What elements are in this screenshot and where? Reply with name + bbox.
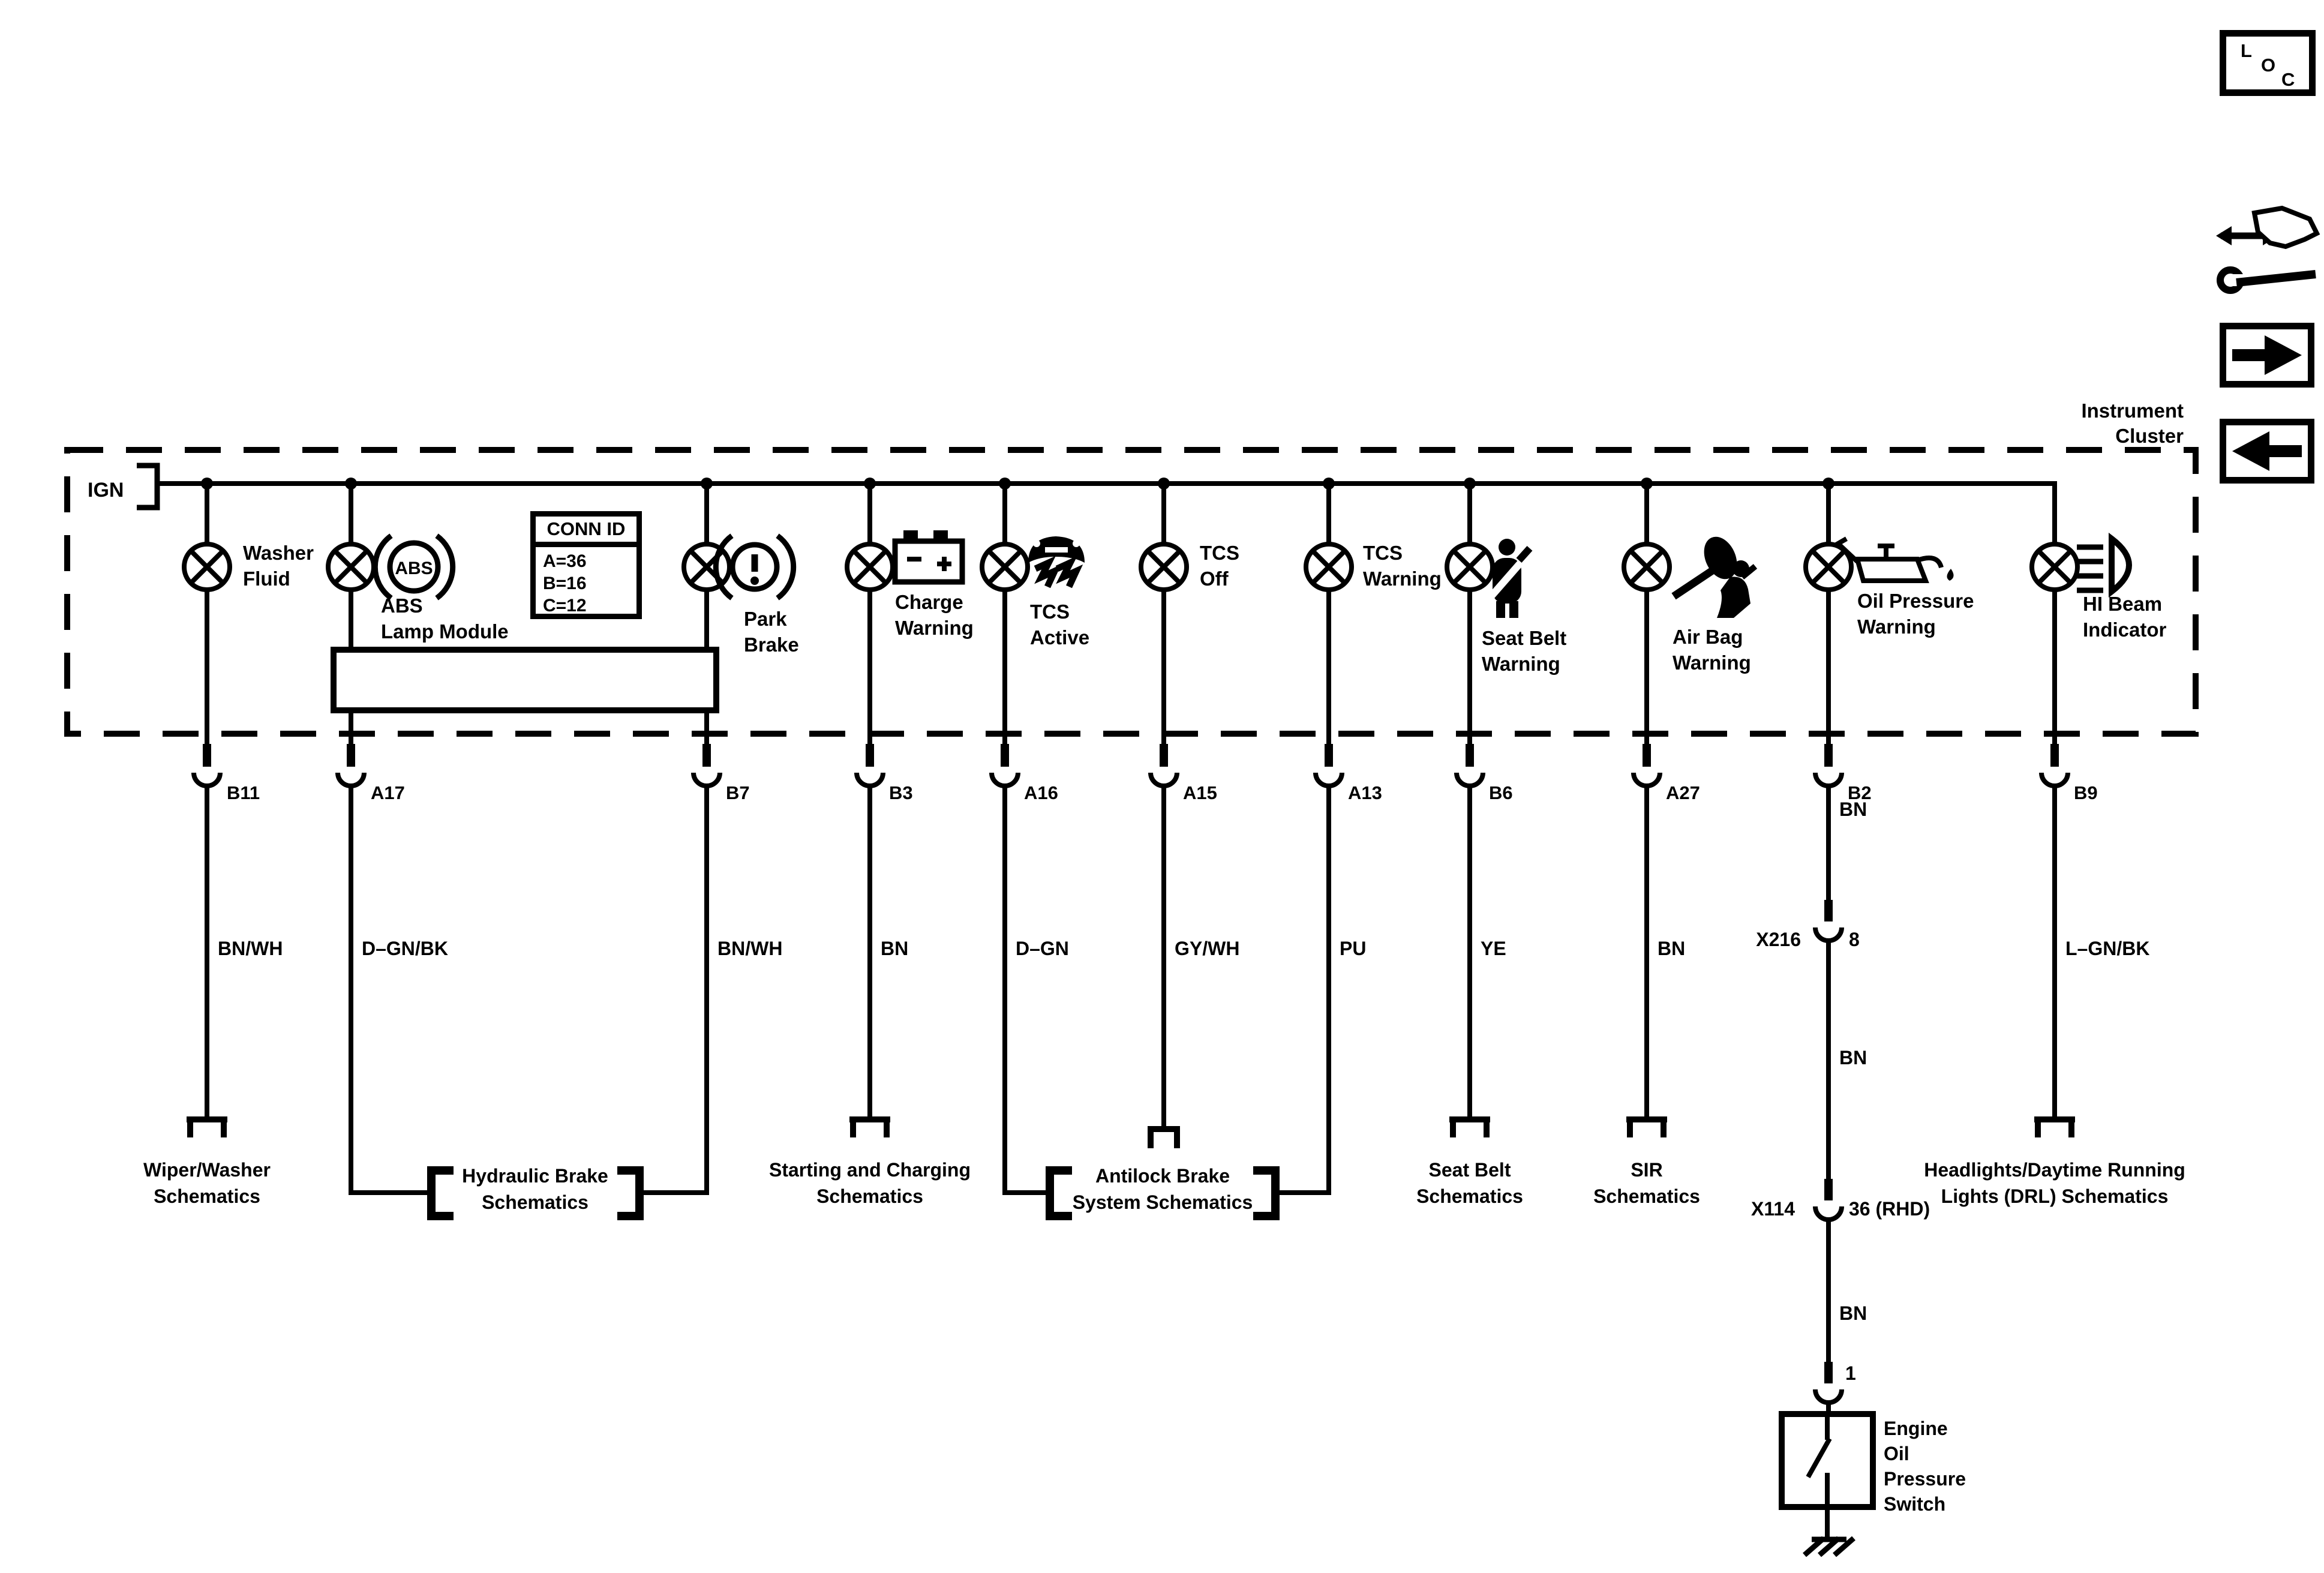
conn-id-rows: A=36 B=16 C=12 <box>536 547 636 617</box>
lamp-label-seat-belt-warning: Seat BeltWarning <box>1482 625 1566 677</box>
b2-wire-color-2: BN <box>1839 1045 1867 1071</box>
schematic-canvas: ABS <box>0 0 2324 1573</box>
lamp-label-tcs-active: TCSActive <box>1030 599 1089 650</box>
pin-label: A15 <box>1183 780 1217 806</box>
wire-color-label: BN <box>1658 936 1685 962</box>
lamp-label-oil-pressure-warning: Oil PressureWarning <box>1857 588 1974 640</box>
ground-icon <box>1804 1538 1854 1555</box>
conn-id-table: CONN ID A=36 B=16 C=12 <box>530 511 642 619</box>
x216-connector-label: X216 <box>1687 927 1801 953</box>
lamp-label-abs-module: ABSLamp Module <box>381 593 509 644</box>
seat-belt-icon <box>1490 539 1530 618</box>
loc-letter-c: C <box>2281 69 2295 91</box>
cluster-connector-icons <box>194 744 2068 786</box>
pin-label: B11 <box>227 780 260 806</box>
lamp-label-tcs-off: TCSOff <box>1200 540 1239 592</box>
battery-icon <box>895 530 962 582</box>
next-page-button[interactable] <box>2220 323 2314 388</box>
lamp-drop-wires <box>207 484 1828 544</box>
dest-headlights-drl: Headlights/Daytime RunningLights (DRL) S… <box>1845 1157 2265 1209</box>
dest-sir: SIRSchematics <box>1437 1157 1857 1209</box>
loc-letter-o: O <box>2261 55 2275 76</box>
abs-icon: ABS <box>375 536 452 598</box>
wire-color-label: BN/WH <box>218 936 283 962</box>
previous-page-button[interactable] <box>2220 419 2314 484</box>
left-arrow-icon <box>2226 425 2308 477</box>
engine-oil-pressure-switch-label: Engine Oil Pressure Switch <box>1884 1416 1966 1517</box>
switch-pin-label: 1 <box>1845 1361 1856 1386</box>
instrument-cluster-label: Instrument Cluster <box>2034 398 2184 449</box>
x216-connector-icon <box>1815 927 1842 941</box>
abs-lamp-module-box <box>334 650 716 710</box>
pin-label: B7 <box>726 780 750 806</box>
pin-label: A27 <box>1666 780 1700 806</box>
pin-label: B6 <box>1489 780 1513 806</box>
pin-label: B9 <box>2074 780 2098 806</box>
pin-label: A13 <box>1348 780 1382 806</box>
switch-pin-connector-icon <box>1815 1389 1842 1403</box>
lamp-label-tcs-warning: TCSWarning <box>1363 540 1442 592</box>
conn-id-title: CONN ID <box>536 517 636 547</box>
svg-text:ABS: ABS <box>395 559 433 578</box>
loc-letter-l: L <box>2241 40 2252 62</box>
wrench-icon[interactable] <box>2216 208 2317 290</box>
oil-can-icon <box>1838 539 1954 581</box>
air-bag-icon <box>1674 532 1755 618</box>
pin-label: A17 <box>371 780 405 806</box>
wire-color-label: L–GN/BK <box>2065 936 2149 962</box>
x216-pin-label: 8 <box>1849 927 1860 953</box>
ign-feed-bracket <box>137 466 157 508</box>
lamp-label-park-brake: ParkBrake <box>744 606 799 658</box>
indicator-lamp-icons <box>184 544 2077 590</box>
pin-label: B3 <box>889 780 913 806</box>
wire-color-label: BN/WH <box>717 936 782 962</box>
pin-label: A16 <box>1024 780 1058 806</box>
ignition-bus-wire <box>157 484 2055 544</box>
right-arrow-icon <box>2226 329 2308 381</box>
ign-label: IGN <box>88 478 124 503</box>
wiring-diagram-page: { "cluster": { "title_lines": ["Instrume… <box>0 0 2324 1573</box>
wire-color-label: GY/WH <box>1175 936 1239 962</box>
offpage-terminal-icons <box>187 1119 2075 1148</box>
wire-color-label: PU <box>1340 936 1366 962</box>
b2-wire-color-3: BN <box>1839 1301 1867 1326</box>
harness-wires <box>207 786 2055 1193</box>
tcs-active-car-icon <box>1028 536 1085 587</box>
wire-color-label: D–GN/BK <box>362 936 448 962</box>
lamp-label-washer-fluid: WasherFluid <box>243 540 314 592</box>
wire-color-label: YE <box>1481 936 1506 962</box>
lamp-label-hi-beam-indicator: HI BeamIndicator <box>2083 591 2166 643</box>
high-beam-icon <box>2077 539 2129 592</box>
b2-wire-color-1: BN <box>1839 797 1867 822</box>
lamp-label-air-bag-warning: Air BagWarning <box>1673 624 1751 676</box>
lamp-label-charge-warning: ChargeWarning <box>895 589 974 641</box>
loc-button[interactable]: L O C <box>2220 30 2316 96</box>
wire-color-label: D–GN <box>1016 936 1069 962</box>
wire-color-label: BN <box>881 936 908 962</box>
